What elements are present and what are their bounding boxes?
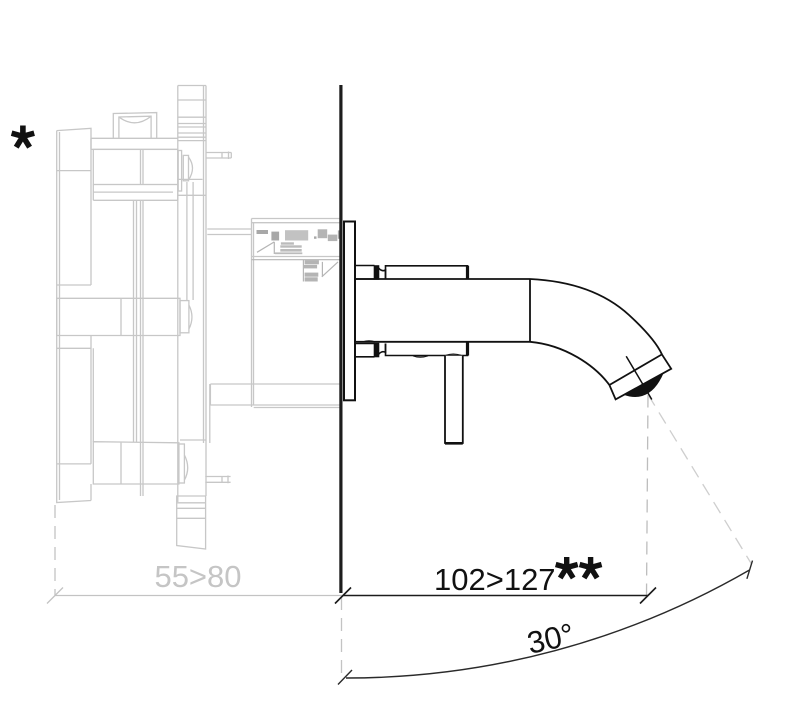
svg-text:30°: 30° (524, 617, 577, 661)
svg-text:55>80: 55>80 (154, 559, 241, 594)
svg-text:102>127: 102>127 (434, 562, 556, 597)
